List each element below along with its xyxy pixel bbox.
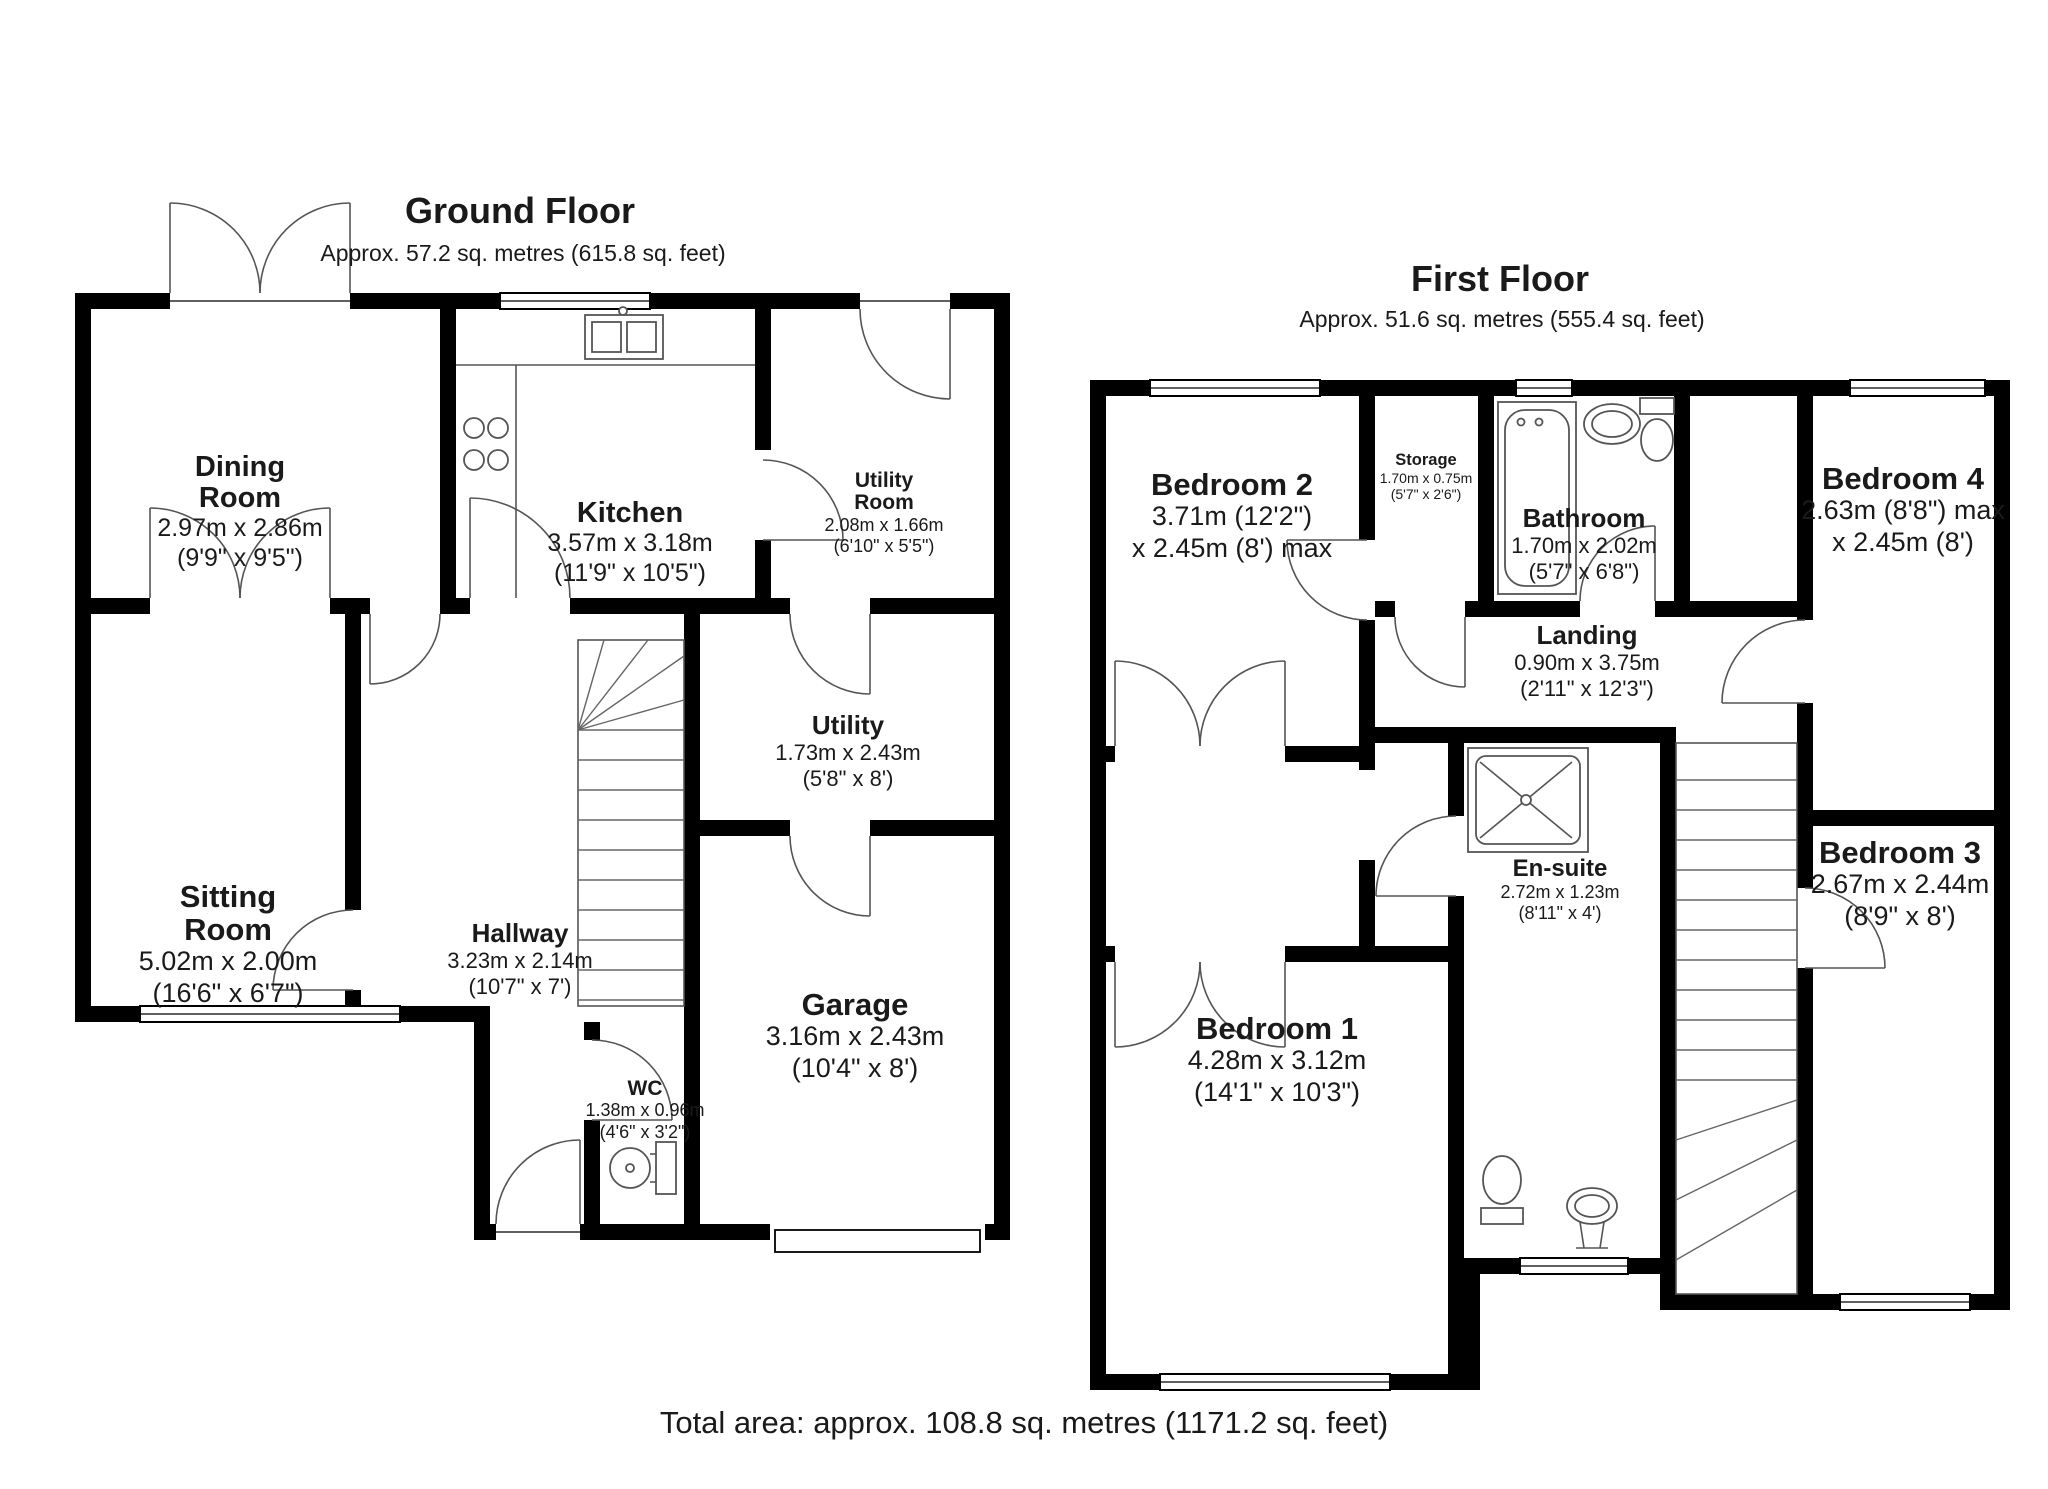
bathroom-sink — [1584, 404, 1640, 444]
room-name: Landing — [1514, 622, 1660, 650]
room-label-garage: Garage 3.16m x 2.43m (10'4" x 8') — [766, 988, 945, 1085]
room-name: Sitting — [139, 880, 318, 913]
room-size-metric: 1.73m x 2.43m — [775, 740, 921, 766]
ensuite-toilet — [1481, 1156, 1523, 1224]
floorplan-drawing — [0, 0, 2048, 1489]
room-label-utility: Utility 1.73m x 2.43m (5'8" x 8') — [775, 712, 921, 792]
room-name: Bedroom 3 — [1811, 836, 1990, 869]
room-size-metric: 3.16m x 2.43m — [766, 1021, 945, 1053]
room-label-bedroom-3: Bedroom 3 2.67m x 2.44m (8'9" x 8') — [1811, 836, 1990, 933]
room-size-metric: 1.38m x 0.96m — [585, 1100, 704, 1121]
first-floor-stairs — [1676, 743, 1797, 1294]
room-name: Bedroom 2 — [1132, 468, 1332, 501]
room-size-imperial: x 2.45m (8') max — [1132, 533, 1332, 565]
room-label-sitting-room: Sitting Room 5.02m x 2.00m (16'6" x 6'7"… — [139, 880, 318, 1010]
wc-toilet — [610, 1142, 676, 1194]
room-size-metric: 2.63m (8'8") max — [1801, 495, 2005, 527]
floorplan-canvas: Ground Floor Approx. 57.2 sq. metres (61… — [0, 0, 2048, 1489]
first-floor-title: First Floor — [1411, 258, 1589, 300]
ensuite-sink — [1567, 1188, 1617, 1248]
room-label-bedroom-2: Bedroom 2 3.71m (12'2") x 2.45m (8') max — [1132, 468, 1332, 565]
room-name: Kitchen — [547, 498, 712, 529]
room-size-metric: 2.67m x 2.44m — [1811, 869, 1990, 901]
room-label-utility-room: Utility Room 2.08m x 1.66m (6'10" x 5'5"… — [824, 470, 943, 557]
shower-tray — [1468, 748, 1588, 852]
first-floor-subtitle: Approx. 51.6 sq. metres (555.4 sq. feet) — [1299, 306, 1704, 333]
ensuite-fixtures — [1468, 748, 1617, 1248]
room-size-metric: 4.28m x 3.12m — [1188, 1045, 1367, 1077]
room-label-en-suite: En-suite 2.72m x 1.23m (8'11" x 4') — [1500, 856, 1619, 924]
room-size-imperial: (16'6" x 6'7") — [139, 978, 318, 1010]
room-size-imperial: (6'10" x 5'5") — [824, 536, 943, 557]
room-name: Storage — [1380, 452, 1473, 470]
room-name: Room — [824, 492, 943, 514]
room-size-imperial: (14'1" x 10'3") — [1188, 1077, 1367, 1109]
room-size-imperial: (8'9" x 8') — [1811, 901, 1990, 933]
room-size-metric: 2.97m x 2.86m — [157, 514, 322, 544]
room-name: Room — [157, 483, 322, 514]
room-size-imperial: (4'6" x 3'2") — [585, 1122, 704, 1143]
garage-door — [775, 1230, 980, 1252]
room-size-metric: 3.57m x 3.18m — [547, 529, 712, 559]
room-size-imperial: (10'7" x 7') — [447, 974, 593, 1000]
room-name: Bathroom — [1511, 505, 1657, 533]
room-name: Utility — [824, 470, 943, 492]
room-size-metric: 5.02m x 2.00m — [139, 946, 318, 978]
ground-floor-subtitle: Approx. 57.2 sq. metres (615.8 sq. feet) — [320, 240, 725, 267]
room-size-imperial: (8'11" x 4') — [1500, 903, 1619, 924]
room-label-storage: Storage 1.70m x 0.75m (5'7" x 2'6") — [1380, 452, 1473, 503]
room-label-hallway: Hallway 3.23m x 2.14m (10'7" x 7') — [447, 920, 593, 1000]
room-label-bathroom: Bathroom 1.70m x 2.02m (5'7" x 6'8") — [1511, 505, 1657, 585]
room-size-imperial: (10'4" x 8') — [766, 1053, 945, 1085]
room-size-metric: 2.72m x 1.23m — [1500, 882, 1619, 903]
room-name: Hallway — [447, 920, 593, 948]
ground-floor-stairs — [578, 640, 684, 1006]
bathroom-toilet — [1640, 398, 1674, 461]
total-area-text: Total area: approx. 108.8 sq. metres (11… — [660, 1405, 1388, 1441]
ground-floor-title: Ground Floor — [405, 190, 635, 232]
room-name: Utility — [775, 712, 921, 740]
room-name: En-suite — [1500, 856, 1619, 882]
room-label-kitchen: Kitchen 3.57m x 3.18m (11'9" x 10'5") — [547, 498, 712, 588]
room-size-metric: 1.70m x 2.02m — [1511, 533, 1657, 559]
room-size-imperial: (9'9" x 9'5") — [157, 544, 322, 574]
room-name: WC — [585, 1078, 704, 1100]
room-size-metric: 3.23m x 2.14m — [447, 948, 593, 974]
room-size-metric: 3.71m (12'2") — [1132, 501, 1332, 533]
room-name: Garage — [766, 988, 945, 1021]
room-size-metric: 0.90m x 3.75m — [1514, 650, 1660, 676]
room-size-imperial: (2'11" x 12'3") — [1514, 676, 1660, 702]
room-label-dining-room: Dining Room 2.97m x 2.86m (9'9" x 9'5") — [157, 452, 322, 573]
room-label-landing: Landing 0.90m x 3.75m (2'11" x 12'3") — [1514, 622, 1660, 702]
room-name: Bedroom 4 — [1801, 462, 2005, 495]
room-size-metric: 1.70m x 0.75m — [1380, 470, 1473, 487]
room-label-bedroom-4: Bedroom 4 2.63m (8'8") max x 2.45m (8') — [1801, 462, 2005, 559]
kitchen-hob — [464, 418, 508, 470]
room-name: Bedroom 1 — [1188, 1012, 1367, 1045]
room-label-wc: WC 1.38m x 0.96m (4'6" x 3'2") — [585, 1078, 704, 1143]
room-size-imperial: (5'8" x 8') — [775, 766, 921, 792]
room-label-bedroom-1: Bedroom 1 4.28m x 3.12m (14'1" x 10'3") — [1188, 1012, 1367, 1109]
room-size-metric: 2.08m x 1.66m — [824, 515, 943, 536]
room-size-imperial: (11'9" x 10'5") — [547, 559, 712, 589]
room-size-imperial: (5'7" x 6'8") — [1511, 559, 1657, 585]
room-name: Room — [139, 913, 318, 946]
room-name: Dining — [157, 452, 322, 483]
room-size-imperial: x 2.45m (8') — [1801, 527, 2005, 559]
room-size-imperial: (5'7" x 2'6") — [1380, 486, 1473, 503]
